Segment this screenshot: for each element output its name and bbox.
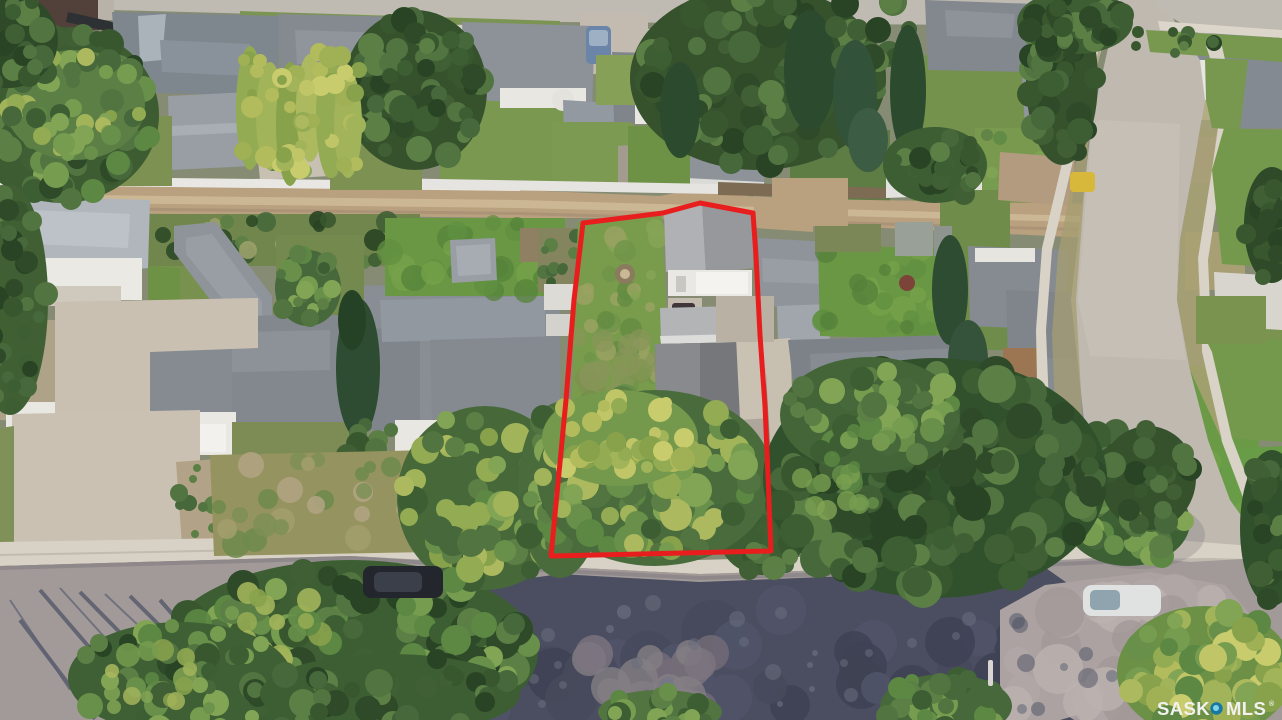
svg-text:SASK: SASK (1157, 698, 1210, 719)
svg-text:MLS: MLS (1226, 698, 1266, 719)
svg-text:®: ® (1269, 700, 1275, 708)
